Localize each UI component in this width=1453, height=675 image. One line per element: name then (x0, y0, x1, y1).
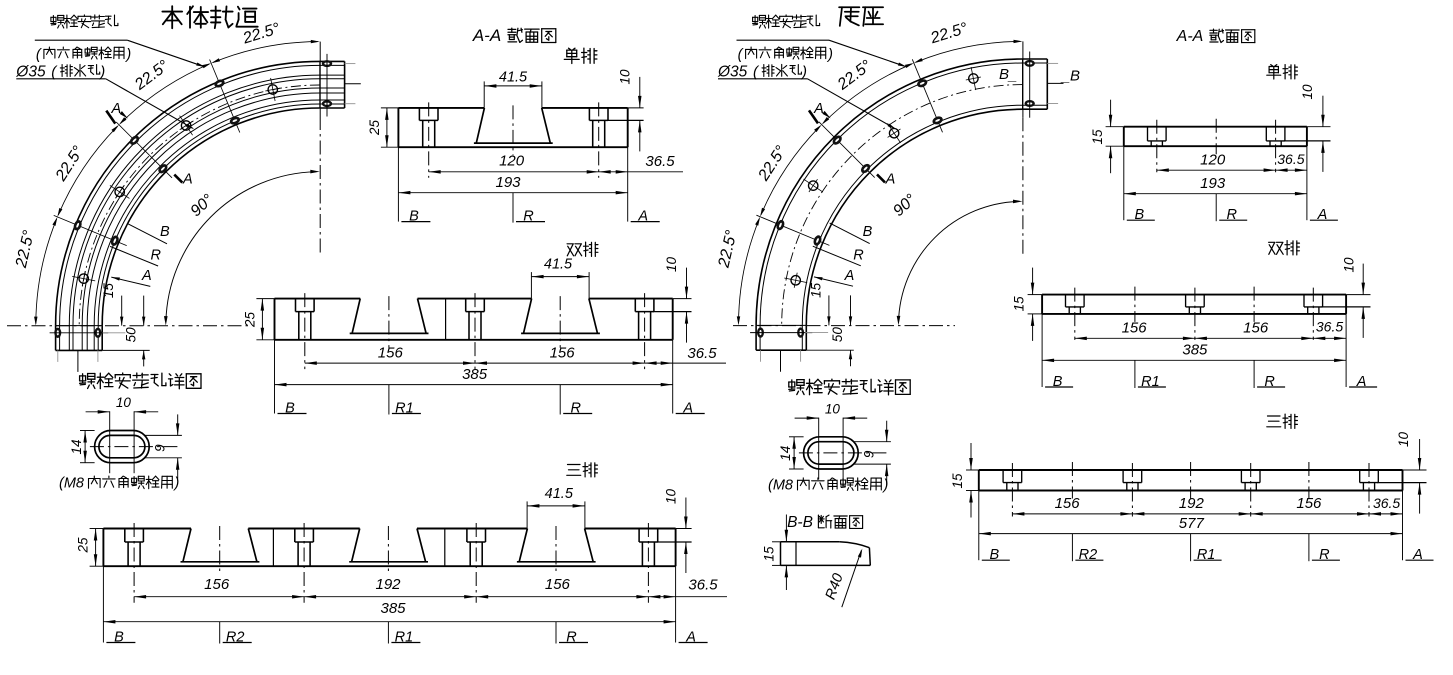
svg-text:Ø35: Ø35 (717, 64, 748, 81)
svg-text:156: 156 (550, 345, 576, 362)
svg-text:): ) (800, 64, 807, 81)
svg-text:A-A: A-A (1176, 28, 1204, 45)
svg-text:(M8: (M8 (59, 476, 84, 492)
svg-text:A-A: A-A (472, 26, 501, 45)
svg-text:385: 385 (380, 600, 406, 617)
svg-text:10: 10 (618, 69, 633, 85)
svg-text:156: 156 (1243, 320, 1269, 337)
svg-text:10: 10 (1300, 84, 1315, 100)
svg-text:R: R (853, 247, 864, 263)
svg-text:B: B (1070, 68, 1080, 85)
svg-text:25: 25 (242, 312, 257, 329)
svg-text:156: 156 (1055, 495, 1081, 512)
svg-text:(M8: (M8 (768, 478, 793, 494)
svg-text:15: 15 (762, 546, 777, 562)
svg-text:25: 25 (76, 537, 91, 554)
svg-text:41.5: 41.5 (499, 69, 528, 85)
svg-text:15: 15 (1090, 129, 1105, 145)
svg-text:B: B (999, 66, 1009, 83)
svg-text:_: _ (1007, 67, 1017, 84)
svg-text:A: A (844, 268, 855, 284)
svg-text:): ) (98, 64, 105, 81)
svg-text:10: 10 (825, 401, 841, 416)
svg-text:36.5: 36.5 (1373, 495, 1400, 511)
svg-text:156: 156 (1122, 320, 1148, 337)
svg-text:A: A (813, 101, 824, 117)
svg-text:36.5: 36.5 (688, 577, 718, 594)
svg-text:14: 14 (778, 446, 793, 461)
svg-text:14: 14 (69, 439, 84, 454)
svg-text:120: 120 (499, 152, 525, 169)
svg-text:B: B (160, 224, 170, 240)
svg-text:36.5: 36.5 (645, 153, 675, 170)
svg-text:193: 193 (495, 174, 521, 191)
svg-text:10: 10 (1342, 257, 1357, 273)
svg-text:385: 385 (462, 366, 488, 383)
svg-text:50: 50 (830, 327, 845, 343)
svg-text:25: 25 (367, 120, 382, 137)
svg-text:50: 50 (123, 327, 138, 343)
svg-text:Ø35: Ø35 (15, 64, 46, 81)
svg-text:385: 385 (1182, 342, 1208, 359)
svg-text:R: R (151, 248, 162, 264)
svg-text:): ) (826, 47, 833, 63)
svg-text:192: 192 (1179, 495, 1205, 512)
svg-text:10: 10 (664, 489, 679, 505)
svg-text:A: A (110, 101, 121, 117)
svg-text:192: 192 (375, 576, 401, 593)
svg-text:15: 15 (1012, 296, 1027, 312)
svg-text:156: 156 (378, 345, 404, 362)
svg-text:10: 10 (1396, 432, 1411, 448)
svg-text:): ) (124, 47, 131, 63)
svg-text:41.5: 41.5 (544, 257, 573, 273)
svg-text:A: A (141, 268, 152, 284)
svg-text:A: A (885, 171, 896, 187)
svg-text:9: 9 (153, 444, 168, 452)
svg-text:B: B (863, 224, 873, 240)
svg-text:B-B: B-B (787, 514, 813, 531)
svg-text:156: 156 (1296, 495, 1322, 512)
svg-text:36.5: 36.5 (1316, 319, 1343, 335)
svg-text:10: 10 (116, 395, 132, 410)
svg-text:36.5: 36.5 (1277, 151, 1304, 167)
svg-text:193: 193 (1200, 175, 1226, 192)
svg-text:36.5: 36.5 (687, 345, 717, 362)
svg-text:120: 120 (1200, 152, 1226, 169)
svg-text:A: A (182, 172, 193, 188)
svg-text:_: _ (1060, 68, 1070, 85)
svg-text:15: 15 (950, 473, 965, 489)
svg-text:15: 15 (808, 282, 823, 298)
svg-text:41.5: 41.5 (545, 486, 574, 502)
svg-text:156: 156 (545, 576, 571, 593)
svg-text:10: 10 (664, 257, 679, 273)
svg-text:156: 156 (204, 576, 230, 593)
svg-text:577: 577 (1179, 515, 1205, 532)
svg-text:15: 15 (101, 283, 116, 299)
svg-text:): ) (172, 476, 179, 492)
svg-text:9: 9 (862, 450, 877, 458)
svg-text:): ) (881, 478, 888, 494)
